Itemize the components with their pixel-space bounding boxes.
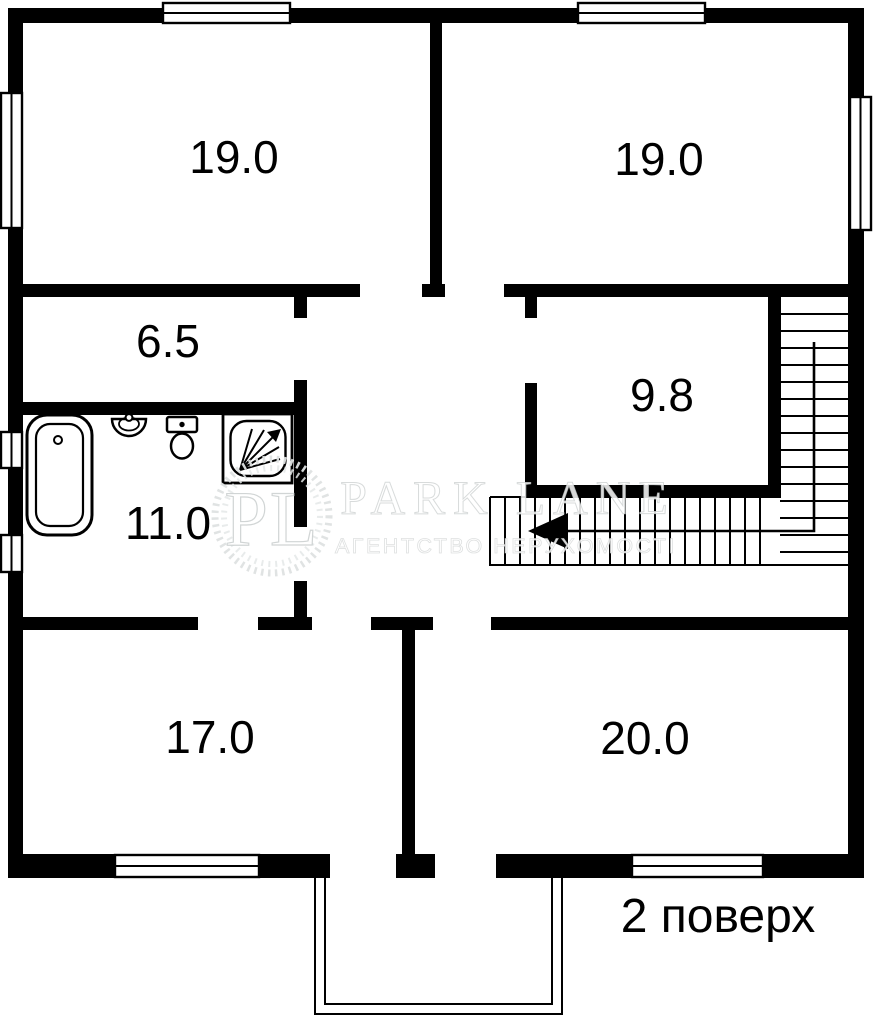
watermark-monogram: PL bbox=[224, 475, 319, 562]
watermark-brand: PARK LANE bbox=[340, 472, 676, 525]
bathtub-icon bbox=[27, 415, 92, 535]
interior-walls bbox=[23, 23, 848, 857]
window bbox=[578, 3, 705, 23]
window bbox=[1, 93, 22, 228]
toilet-icon bbox=[167, 417, 197, 459]
room-label-hallway: 6.5 bbox=[136, 315, 200, 367]
balcony-railing bbox=[315, 878, 562, 1014]
window bbox=[632, 855, 763, 877]
room-label-room-bottom-right: 20.0 bbox=[600, 712, 690, 764]
floor-label: 2 поверх bbox=[621, 890, 816, 943]
floor-plan-canvas: 19.0 19.0 6.5 9.8 11.0 17.0 20.0 PL PARK… bbox=[0, 0, 873, 1024]
room-label-room-bottom-left: 17.0 bbox=[165, 711, 255, 763]
window bbox=[1, 535, 22, 572]
sink-icon bbox=[112, 414, 146, 436]
room-label-bathroom: 11.0 bbox=[125, 497, 211, 549]
watermark-tagline: АГЕНТСТВО НЕРУХОМОСТІ bbox=[335, 534, 677, 558]
room-label-bedroom-top-left: 19.0 bbox=[189, 131, 279, 183]
watermark: PL PARK LANE АГЕНТСТВО НЕРУХОМОСТІ bbox=[215, 459, 677, 573]
room-label-room-mid-right: 9.8 bbox=[630, 369, 694, 421]
window bbox=[850, 97, 871, 230]
room-label-bedroom-top-right: 19.0 bbox=[614, 133, 704, 185]
window bbox=[115, 855, 259, 877]
floor-plan-page: 19.0 19.0 6.5 9.8 11.0 17.0 20.0 PL PARK… bbox=[0, 0, 873, 1024]
window bbox=[1, 432, 22, 468]
window bbox=[163, 3, 290, 23]
